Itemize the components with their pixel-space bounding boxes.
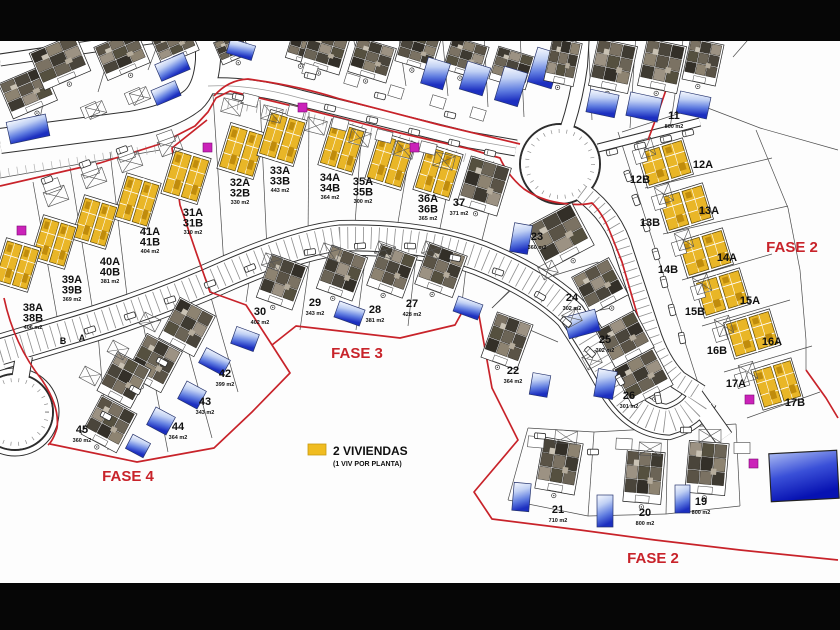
svg-text:364 m2: 364 m2 (169, 435, 188, 441)
svg-text:17A: 17A (726, 378, 746, 390)
svg-text:FASE 2: FASE 2 (766, 239, 818, 256)
svg-text:FASE 4: FASE 4 (102, 468, 154, 485)
svg-text:371 m2: 371 m2 (450, 211, 469, 217)
svg-text:365 m2: 365 m2 (419, 216, 438, 222)
svg-text:38B: 38B (23, 312, 43, 324)
svg-text:43: 43 (199, 396, 211, 408)
svg-text:41B: 41B (140, 236, 160, 248)
svg-text:343 m2: 343 m2 (196, 410, 215, 416)
svg-text:300 m2: 300 m2 (354, 199, 373, 205)
svg-text:35B: 35B (353, 186, 373, 198)
svg-text:28: 28 (369, 304, 381, 316)
svg-text:19: 19 (695, 496, 707, 508)
svg-text:15B: 15B (685, 306, 705, 318)
svg-text:30: 30 (254, 306, 266, 318)
svg-text:16B: 16B (707, 345, 727, 357)
svg-text:800 m2: 800 m2 (636, 521, 655, 527)
svg-text:13B: 13B (640, 217, 660, 229)
svg-text:381 m2: 381 m2 (366, 318, 385, 324)
svg-text:36B: 36B (418, 203, 438, 215)
svg-text:FASE 3: FASE 3 (331, 345, 383, 362)
svg-text:A: A (79, 333, 86, 343)
svg-text:17B: 17B (785, 397, 805, 409)
svg-text:12B: 12B (630, 174, 650, 186)
svg-text:42: 42 (219, 368, 231, 380)
svg-text:360 m2: 360 m2 (528, 245, 547, 251)
svg-text:330 m2: 330 m2 (231, 200, 250, 206)
svg-text:(1 VIV POR PLANTA): (1 VIV POR PLANTA) (333, 461, 402, 468)
svg-text:16A: 16A (762, 336, 782, 348)
svg-text:381 m2: 381 m2 (101, 279, 120, 285)
svg-text:343 m2: 343 m2 (306, 311, 325, 317)
svg-text:800 m2: 800 m2 (692, 510, 711, 516)
svg-text:25: 25 (599, 334, 611, 346)
svg-text:31B: 31B (183, 217, 203, 229)
svg-text:14B: 14B (658, 264, 678, 276)
svg-text:302 m2: 302 m2 (563, 306, 582, 312)
svg-text:34B: 34B (320, 182, 340, 194)
svg-text:44: 44 (172, 421, 185, 433)
svg-text:369 m2: 369 m2 (63, 297, 82, 303)
svg-text:15A: 15A (740, 295, 760, 307)
svg-text:310 m2: 310 m2 (184, 230, 203, 236)
svg-text:2 VIVIENDAS: 2 VIVIENDAS (333, 444, 408, 458)
svg-text:360 m2: 360 m2 (73, 438, 92, 444)
svg-text:13A: 13A (699, 205, 719, 217)
svg-text:24: 24 (566, 292, 579, 304)
svg-text:20: 20 (639, 507, 651, 519)
svg-text:364 m2: 364 m2 (504, 379, 523, 385)
svg-text:364 m2: 364 m2 (321, 195, 340, 201)
svg-text:37: 37 (453, 197, 465, 209)
svg-text:710 m2: 710 m2 (549, 518, 568, 524)
svg-text:428 m2: 428 m2 (403, 312, 422, 318)
svg-text:22: 22 (507, 365, 519, 377)
svg-text:800 m2: 800 m2 (665, 124, 684, 130)
svg-text:45: 45 (76, 424, 88, 436)
svg-text:FASE 2: FASE 2 (627, 550, 679, 567)
svg-text:12A: 12A (693, 159, 713, 171)
svg-text:26: 26 (623, 390, 635, 402)
svg-text:406 m2: 406 m2 (24, 325, 43, 331)
svg-text:27: 27 (406, 298, 418, 310)
svg-text:443 m2: 443 m2 (271, 188, 290, 194)
svg-text:29: 29 (309, 297, 321, 309)
svg-text:23: 23 (531, 231, 543, 243)
svg-text:39B: 39B (62, 284, 82, 296)
svg-text:14A: 14A (717, 252, 737, 264)
svg-text:B: B (60, 336, 67, 346)
svg-text:399 m2: 399 m2 (216, 382, 235, 388)
svg-text:402 m2: 402 m2 (251, 320, 270, 326)
svg-text:11: 11 (668, 110, 680, 122)
svg-text:302 m2: 302 m2 (596, 348, 615, 354)
svg-text:404 m2: 404 m2 (141, 249, 160, 255)
svg-text:301 m2: 301 m2 (620, 404, 639, 410)
svg-text:32B: 32B (230, 187, 250, 199)
svg-text:33B: 33B (270, 175, 290, 187)
svg-text:40B: 40B (100, 266, 120, 278)
svg-text:21: 21 (552, 504, 564, 516)
